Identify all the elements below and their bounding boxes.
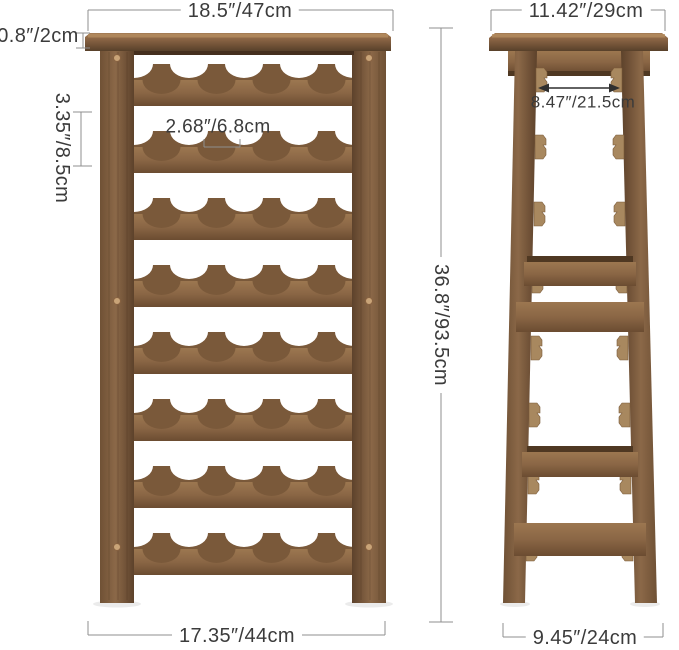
side-far-rail-lower xyxy=(527,446,633,453)
front-board-shadow xyxy=(134,51,354,55)
front-board-highlight xyxy=(88,34,388,38)
dim-label-side-bottom-depth: 9.45″/24cm xyxy=(526,627,644,649)
side-stretcher-4 xyxy=(514,523,646,556)
side-far-rail-upper xyxy=(527,256,633,263)
dim-label-front-bottom-width: 17.35″/44cm xyxy=(172,625,302,647)
dim-label-board-thickness: 0.8″/2cm xyxy=(0,25,79,47)
dim-label-slot-width: 2.68″/6.8cm xyxy=(165,118,270,139)
dim-arrow-inner-depth xyxy=(538,84,620,93)
front-left-leg xyxy=(100,45,134,603)
dim-line-row-spacing xyxy=(73,112,92,166)
wine-rack-dimension-diagram: 18.5″/47cm 0.8″/2cm 3.35″/8.5cm 2.68″/6.… xyxy=(0,0,679,650)
side-board-highlight xyxy=(492,34,665,38)
side-view xyxy=(489,33,668,607)
dim-label-row-spacing: 3.35″/8.5cm xyxy=(51,93,73,203)
side-stretcher-1 xyxy=(524,262,636,286)
dim-label-inner-depth: 8.47″/21.5cm xyxy=(531,94,635,113)
side-stretcher-2 xyxy=(516,302,644,332)
dim-label-front-top-width: 18.5″/47cm xyxy=(181,0,299,22)
dim-label-total-height: 36.8″/93.5cm xyxy=(430,257,452,393)
dim-label-side-top-depth: 11.42″/29cm xyxy=(522,0,651,22)
front-right-leg xyxy=(352,45,386,603)
side-stretcher-3 xyxy=(522,452,638,477)
